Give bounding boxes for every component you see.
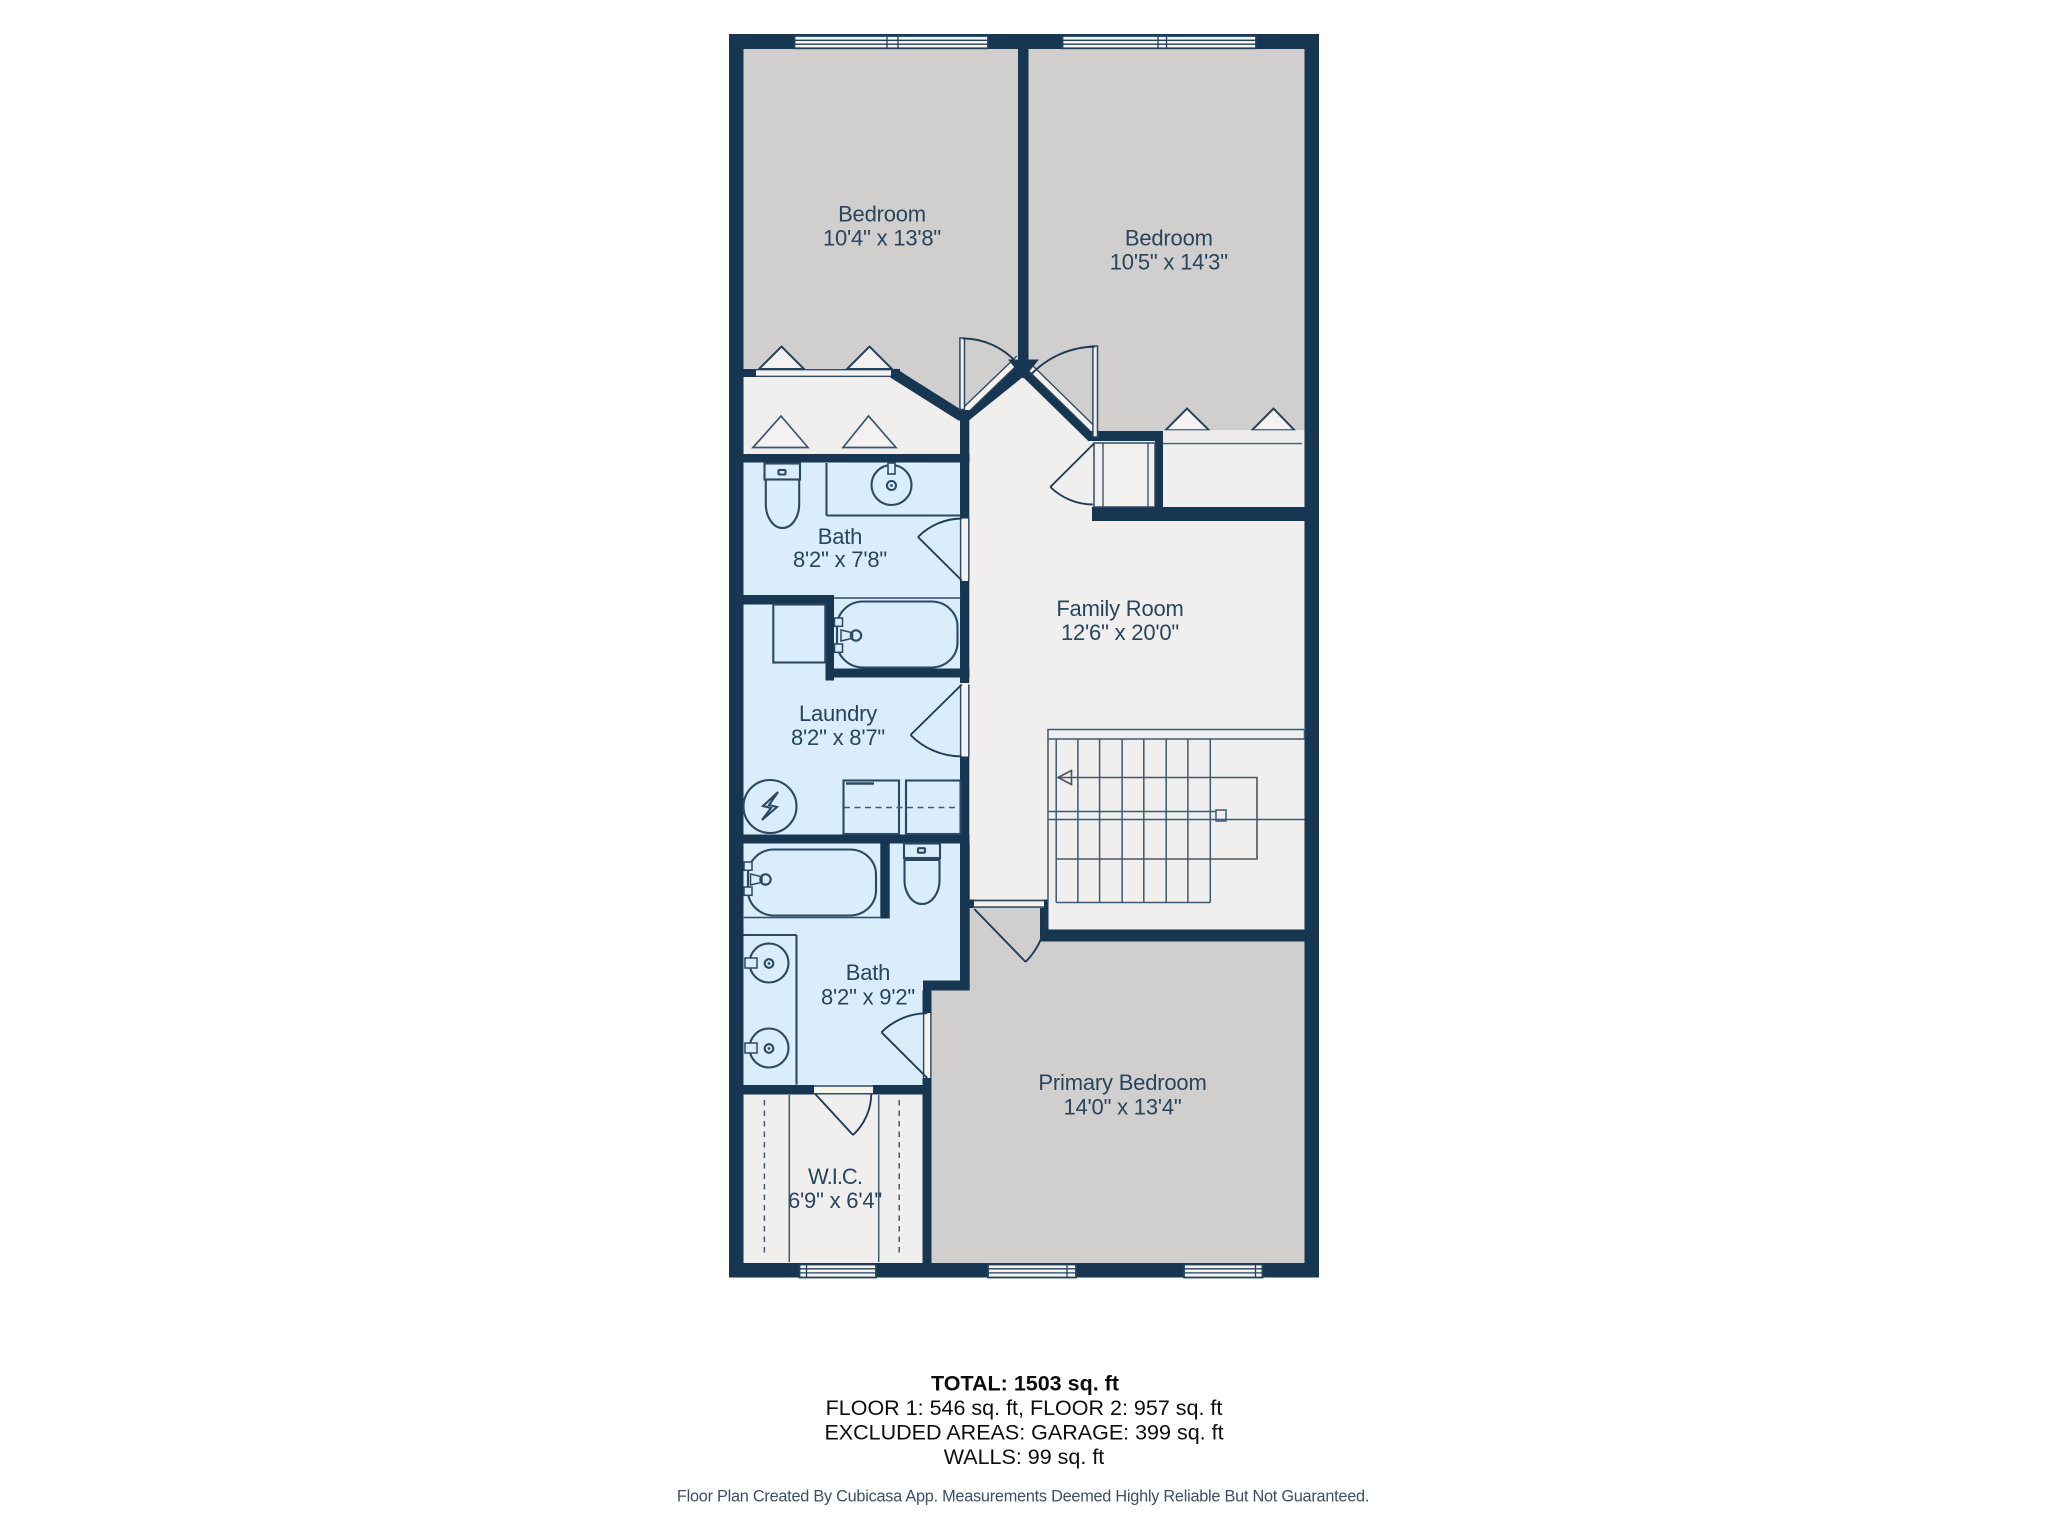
svg-text:Bedroom: Bedroom bbox=[838, 202, 926, 227]
svg-text:EXCLUDED AREAS: GARAGE: 399 sq: EXCLUDED AREAS: GARAGE: 399 sq. ft bbox=[824, 1421, 1223, 1445]
svg-text:W.I.C.: W.I.C. bbox=[808, 1164, 862, 1189]
svg-text:Family Room: Family Room bbox=[1056, 596, 1183, 621]
svg-text:8'2" x 7'8": 8'2" x 7'8" bbox=[793, 547, 887, 572]
svg-text:12'6" x 20'0": 12'6" x 20'0" bbox=[1061, 620, 1179, 645]
svg-text:Primary Bedroom: Primary Bedroom bbox=[1038, 1070, 1206, 1095]
svg-text:6'9" x 6'4": 6'9" x 6'4" bbox=[788, 1188, 882, 1213]
svg-text:Bath: Bath bbox=[846, 960, 890, 985]
svg-text:14'0" x 13'4": 14'0" x 13'4" bbox=[1063, 1095, 1181, 1120]
svg-text:8'2" x 8'7": 8'2" x 8'7" bbox=[791, 725, 885, 750]
svg-text:WALLS: 99 sq. ft: WALLS: 99 sq. ft bbox=[944, 1445, 1105, 1469]
svg-text:Bedroom: Bedroom bbox=[1125, 226, 1213, 251]
svg-text:10'4" x 13'8": 10'4" x 13'8" bbox=[823, 226, 941, 251]
svg-text:8'2" x 9'2": 8'2" x 9'2" bbox=[821, 985, 915, 1010]
svg-text:Laundry: Laundry bbox=[799, 701, 877, 726]
svg-text:10'5" x 14'3": 10'5" x 14'3" bbox=[1110, 250, 1228, 275]
svg-text:Floor Plan Created By Cubicasa: Floor Plan Created By Cubicasa App. Meas… bbox=[677, 1488, 1369, 1506]
svg-text:Bath: Bath bbox=[818, 524, 862, 549]
svg-text:TOTAL: 1503 sq. ft: TOTAL: 1503 sq. ft bbox=[931, 1372, 1119, 1396]
svg-text:FLOOR 1: 546 sq. ft, FLOOR 2:: FLOOR 1: 546 sq. ft, FLOOR 2: 957 sq. ft bbox=[826, 1396, 1223, 1420]
